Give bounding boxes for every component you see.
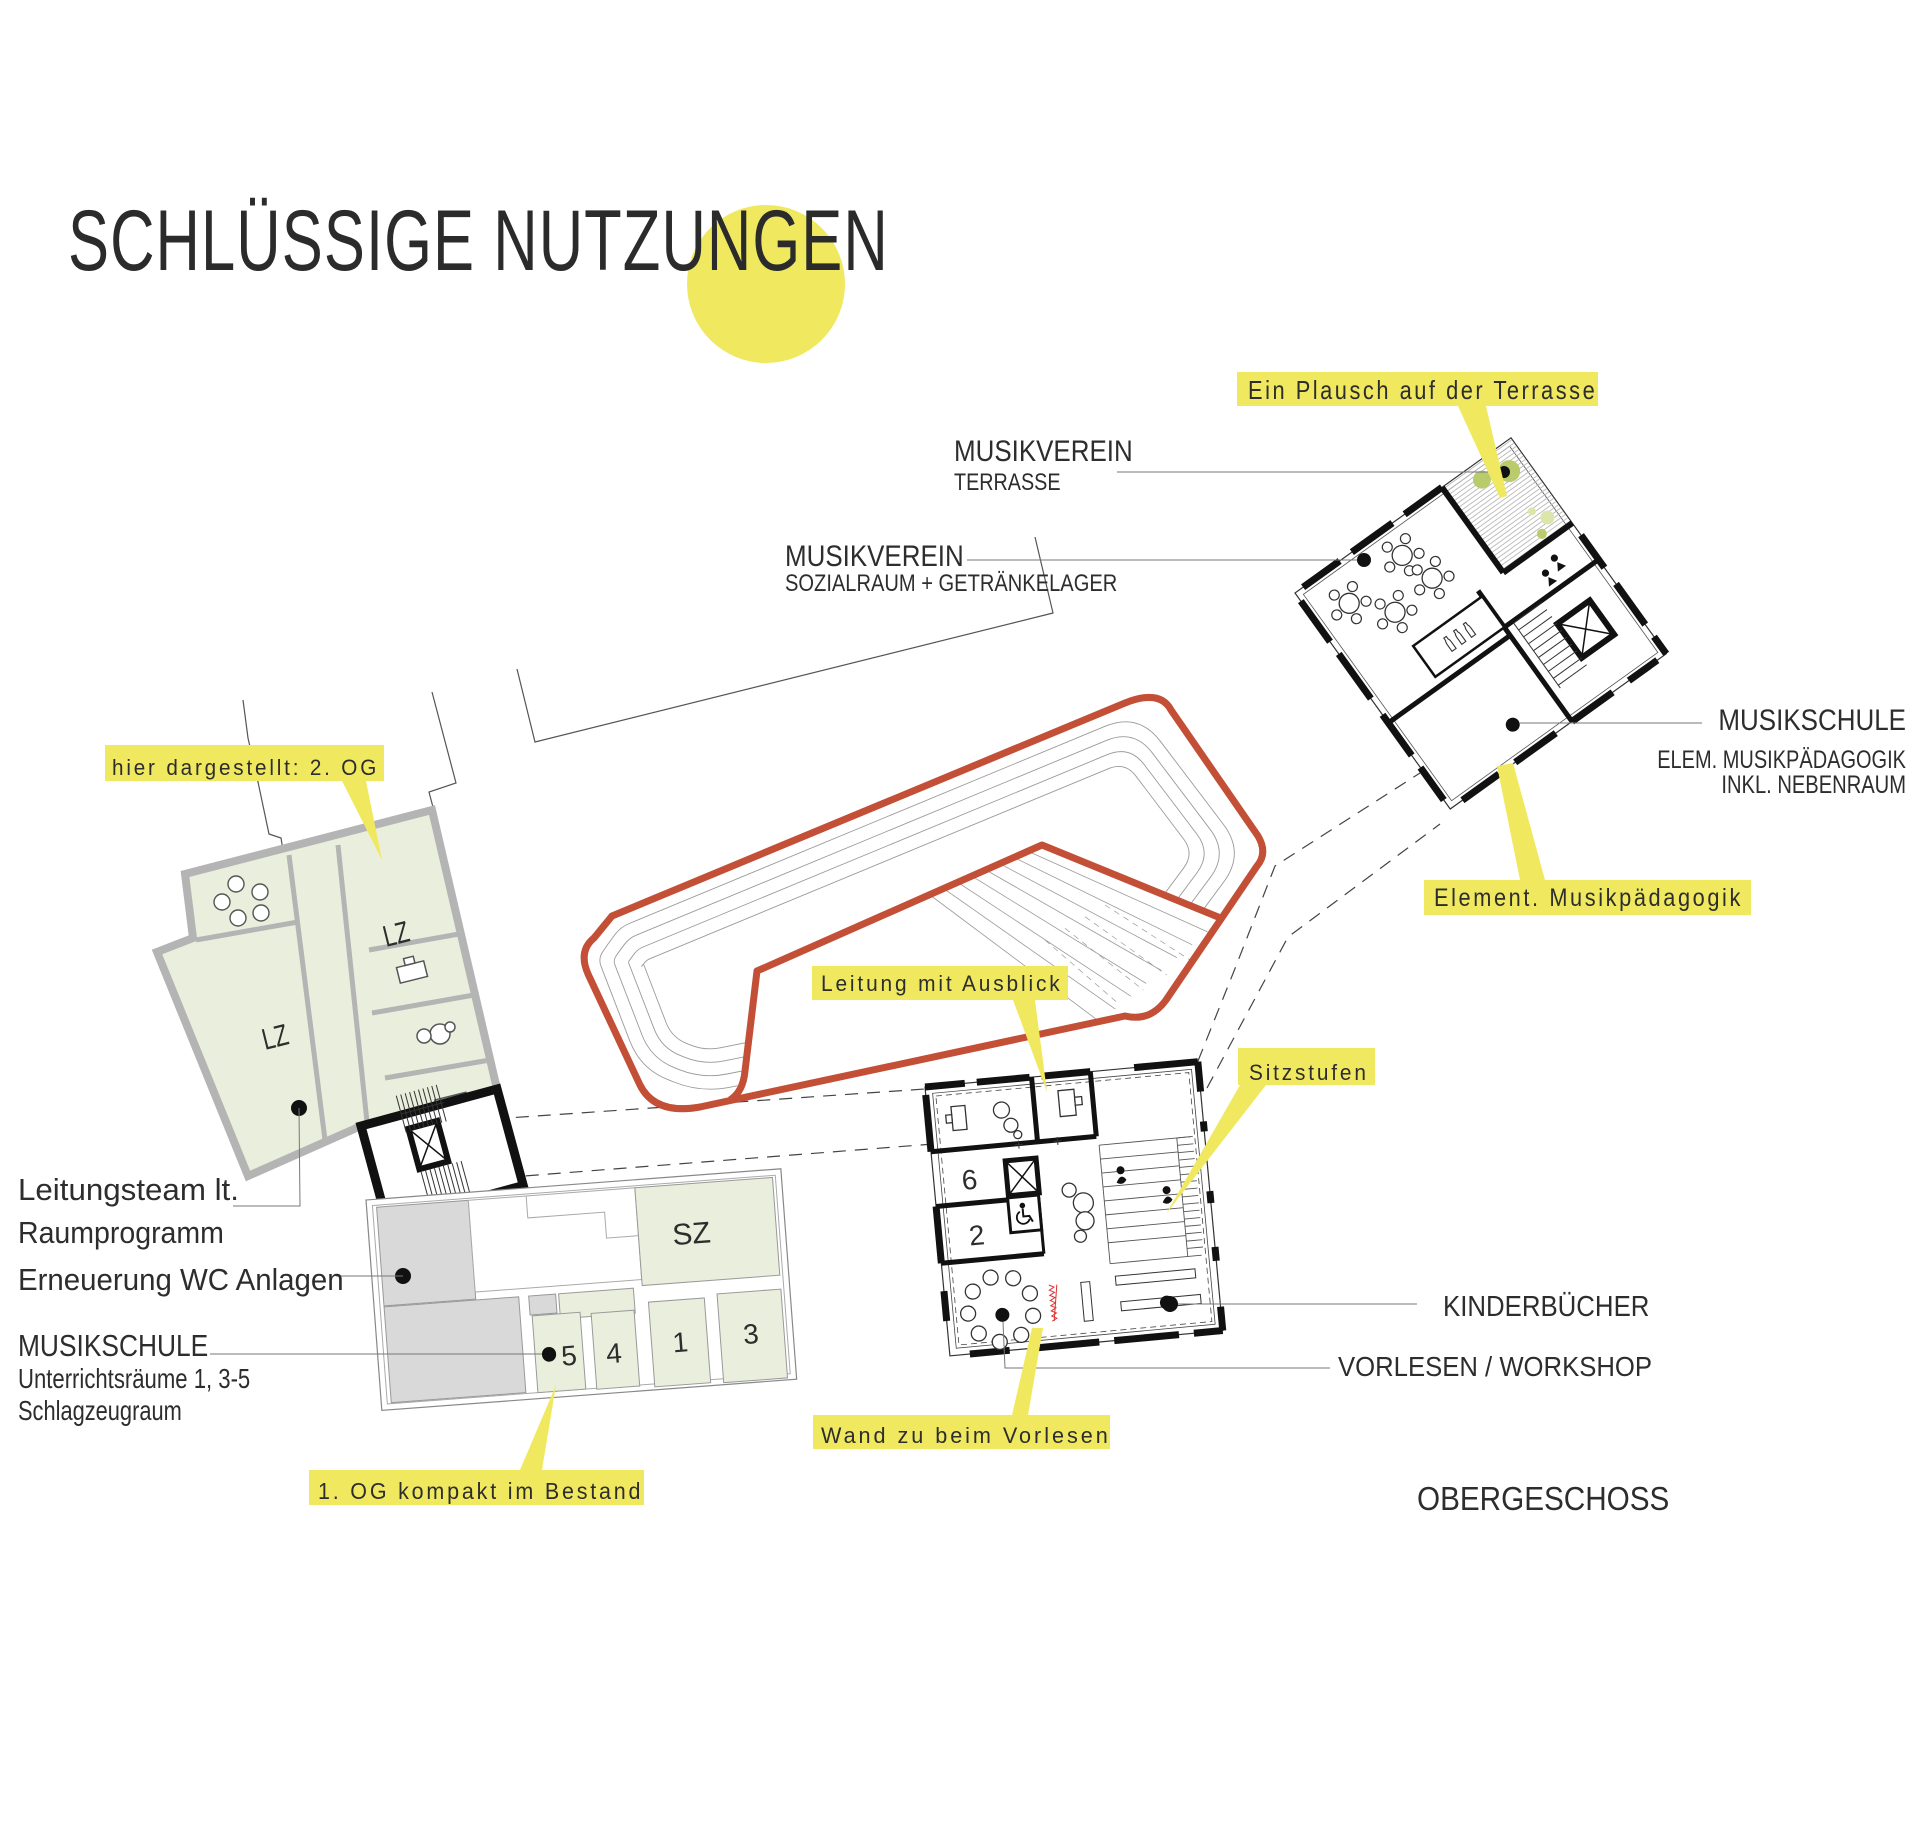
svg-text:Element. Musikpädagogik: Element. Musikpädagogik — [1434, 884, 1743, 912]
svg-text:Leitungsteam lt.: Leitungsteam lt. — [18, 1172, 239, 1207]
svg-text:Sitzstufen: Sitzstufen — [1249, 1060, 1369, 1085]
svg-text:KINDERBÜCHER: KINDERBÜCHER — [1443, 1290, 1649, 1323]
svg-text:hier dargestellt: 2. OG: hier dargestellt: 2. OG — [112, 755, 379, 780]
svg-text:TERRASSE: TERRASSE — [954, 468, 1061, 495]
svg-text:Erneuerung WC Anlagen: Erneuerung WC Anlagen — [18, 1263, 344, 1297]
svg-text:Ein Plausch auf der Terrasse: Ein Plausch auf der Terrasse — [1248, 376, 1597, 405]
svg-text:Unterrichtsräume 1, 3-5: Unterrichtsräume 1, 3-5 — [18, 1364, 250, 1395]
svg-text:MUSIKVEREIN: MUSIKVEREIN — [785, 539, 964, 572]
svg-text:3: 3 — [742, 1318, 760, 1350]
svg-text:1. OG kompakt im Bestand: 1. OG kompakt im Bestand — [318, 1478, 643, 1504]
svg-text:SOZIALRAUM + GETRÄNKELAGER: SOZIALRAUM + GETRÄNKELAGER — [785, 569, 1117, 596]
svg-text:2: 2 — [968, 1219, 986, 1251]
svg-text:Leitung mit Ausblick: Leitung mit Ausblick — [821, 972, 1063, 997]
svg-text:Schlagzeugraum: Schlagzeugraum — [18, 1395, 182, 1426]
svg-text:MUSIKVEREIN: MUSIKVEREIN — [954, 434, 1133, 467]
svg-text:5: 5 — [560, 1340, 578, 1372]
svg-text:SCHLÜSSIGE NUTZUNGEN: SCHLÜSSIGE NUTZUNGEN — [68, 192, 889, 289]
svg-text:Raumprogramm: Raumprogramm — [18, 1216, 224, 1250]
svg-text:MUSIKSCHULE: MUSIKSCHULE — [18, 1329, 208, 1363]
svg-text:VORLESEN / WORKSHOP: VORLESEN / WORKSHOP — [1338, 1351, 1652, 1382]
svg-text:INKL. NEBENRAUM: INKL. NEBENRAUM — [1721, 770, 1906, 799]
svg-text:MUSIKSCHULE: MUSIKSCHULE — [1718, 703, 1906, 736]
svg-text:OBERGESCHOSS: OBERGESCHOSS — [1417, 1481, 1669, 1518]
svg-text:Wand zu beim Vorlesen: Wand zu beim Vorlesen — [821, 1423, 1111, 1448]
svg-text:4: 4 — [605, 1337, 623, 1369]
svg-text:6: 6 — [960, 1164, 978, 1196]
svg-text:SZ: SZ — [671, 1216, 712, 1252]
svg-text:1: 1 — [671, 1326, 689, 1358]
